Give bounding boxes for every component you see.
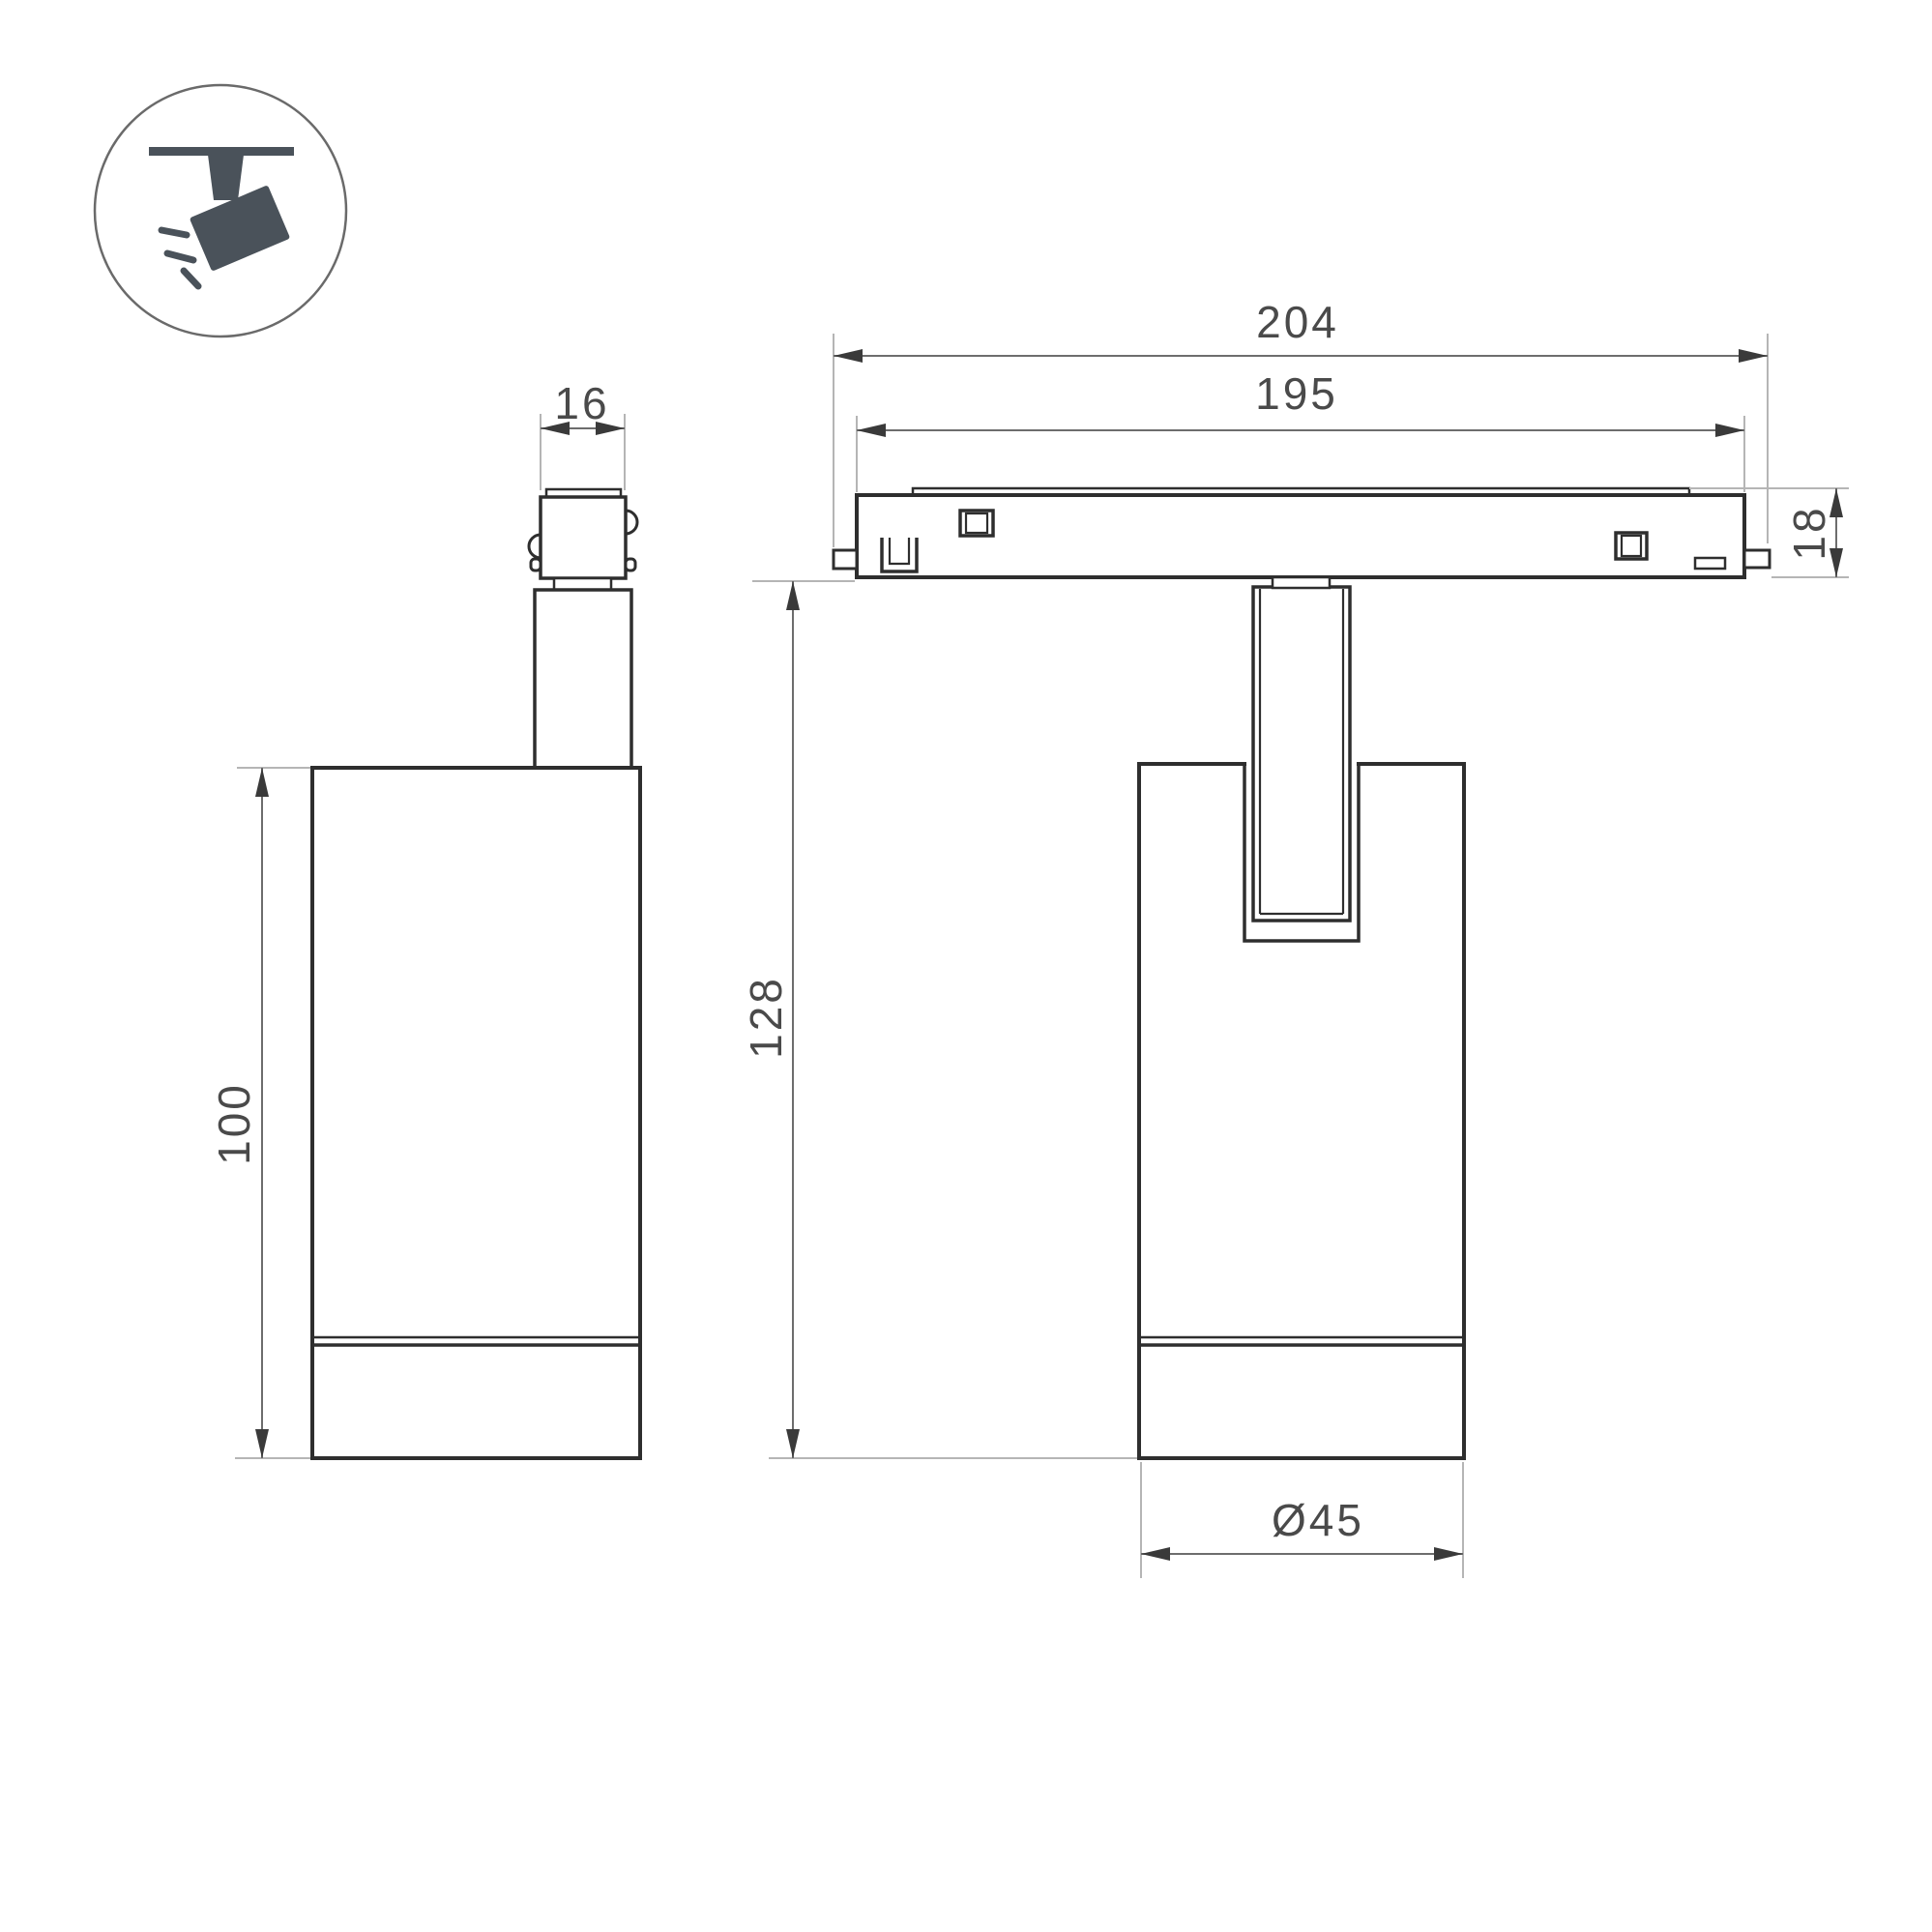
dimension-track-inner-length [857,416,1744,492]
technical-drawing [0,0,1932,1932]
drawing-canvas: 16 204 195 18 128 100 Ø45 [0,0,1932,1932]
icon-light-ray [161,230,187,235]
side-connector-box [541,497,626,578]
dim-label-body-height: 100 [212,1082,256,1165]
dim-label-connector-width: 16 [554,381,609,425]
front-view [834,488,1770,1458]
side-clip-left [529,535,541,558]
side-stem [535,590,631,768]
dimension-total-height [752,581,1137,1458]
icon-stem [208,155,244,200]
front-stem [1253,587,1350,921]
side-view [312,489,640,1458]
dim-label-track-inner-length: 195 [1255,371,1338,416]
dim-label-track-height: 18 [1787,505,1831,560]
dim-label-total-height: 128 [744,976,788,1059]
track-end-tab-right [1744,550,1770,568]
side-body [312,768,640,1458]
track-end-tab-left [834,550,857,569]
front-neck [1273,577,1330,588]
dim-label-body-diameter: Ø45 [1272,1498,1364,1542]
side-neck [554,578,611,590]
side-ear-left [531,559,541,571]
track-spotlight-icon [95,85,346,337]
dim-label-track-length: 204 [1256,300,1339,344]
side-ear-right [626,559,635,571]
side-clip-right [626,511,637,534]
icon-track-bar [149,147,294,156]
